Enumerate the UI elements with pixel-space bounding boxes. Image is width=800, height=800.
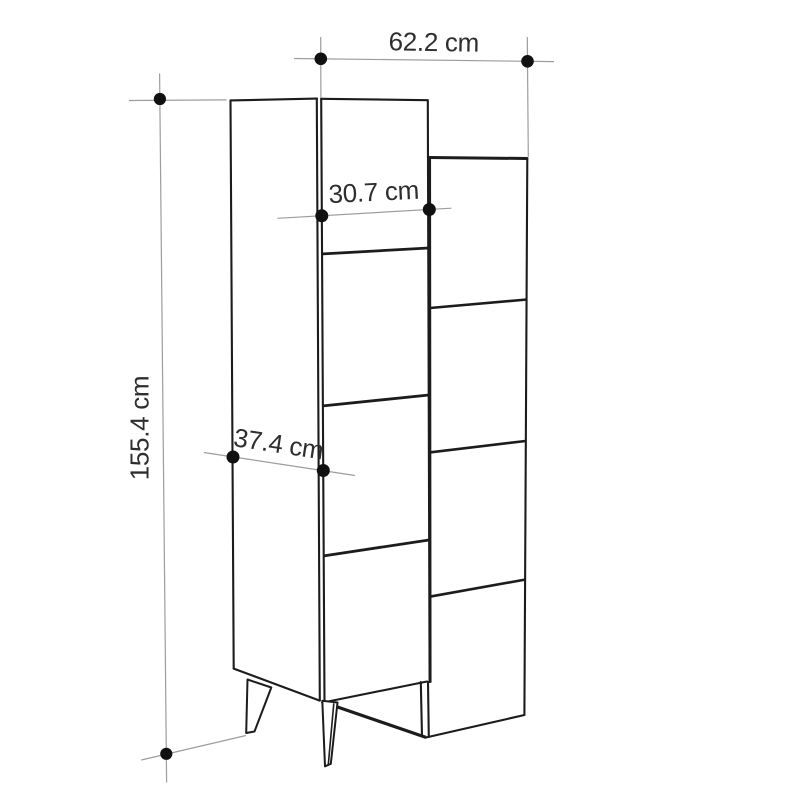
- svg-text:62.2 cm: 62.2 cm: [388, 26, 479, 57]
- svg-text:30.7 cm: 30.7 cm: [328, 175, 420, 209]
- svg-text:155.4 cm: 155.4 cm: [124, 376, 154, 481]
